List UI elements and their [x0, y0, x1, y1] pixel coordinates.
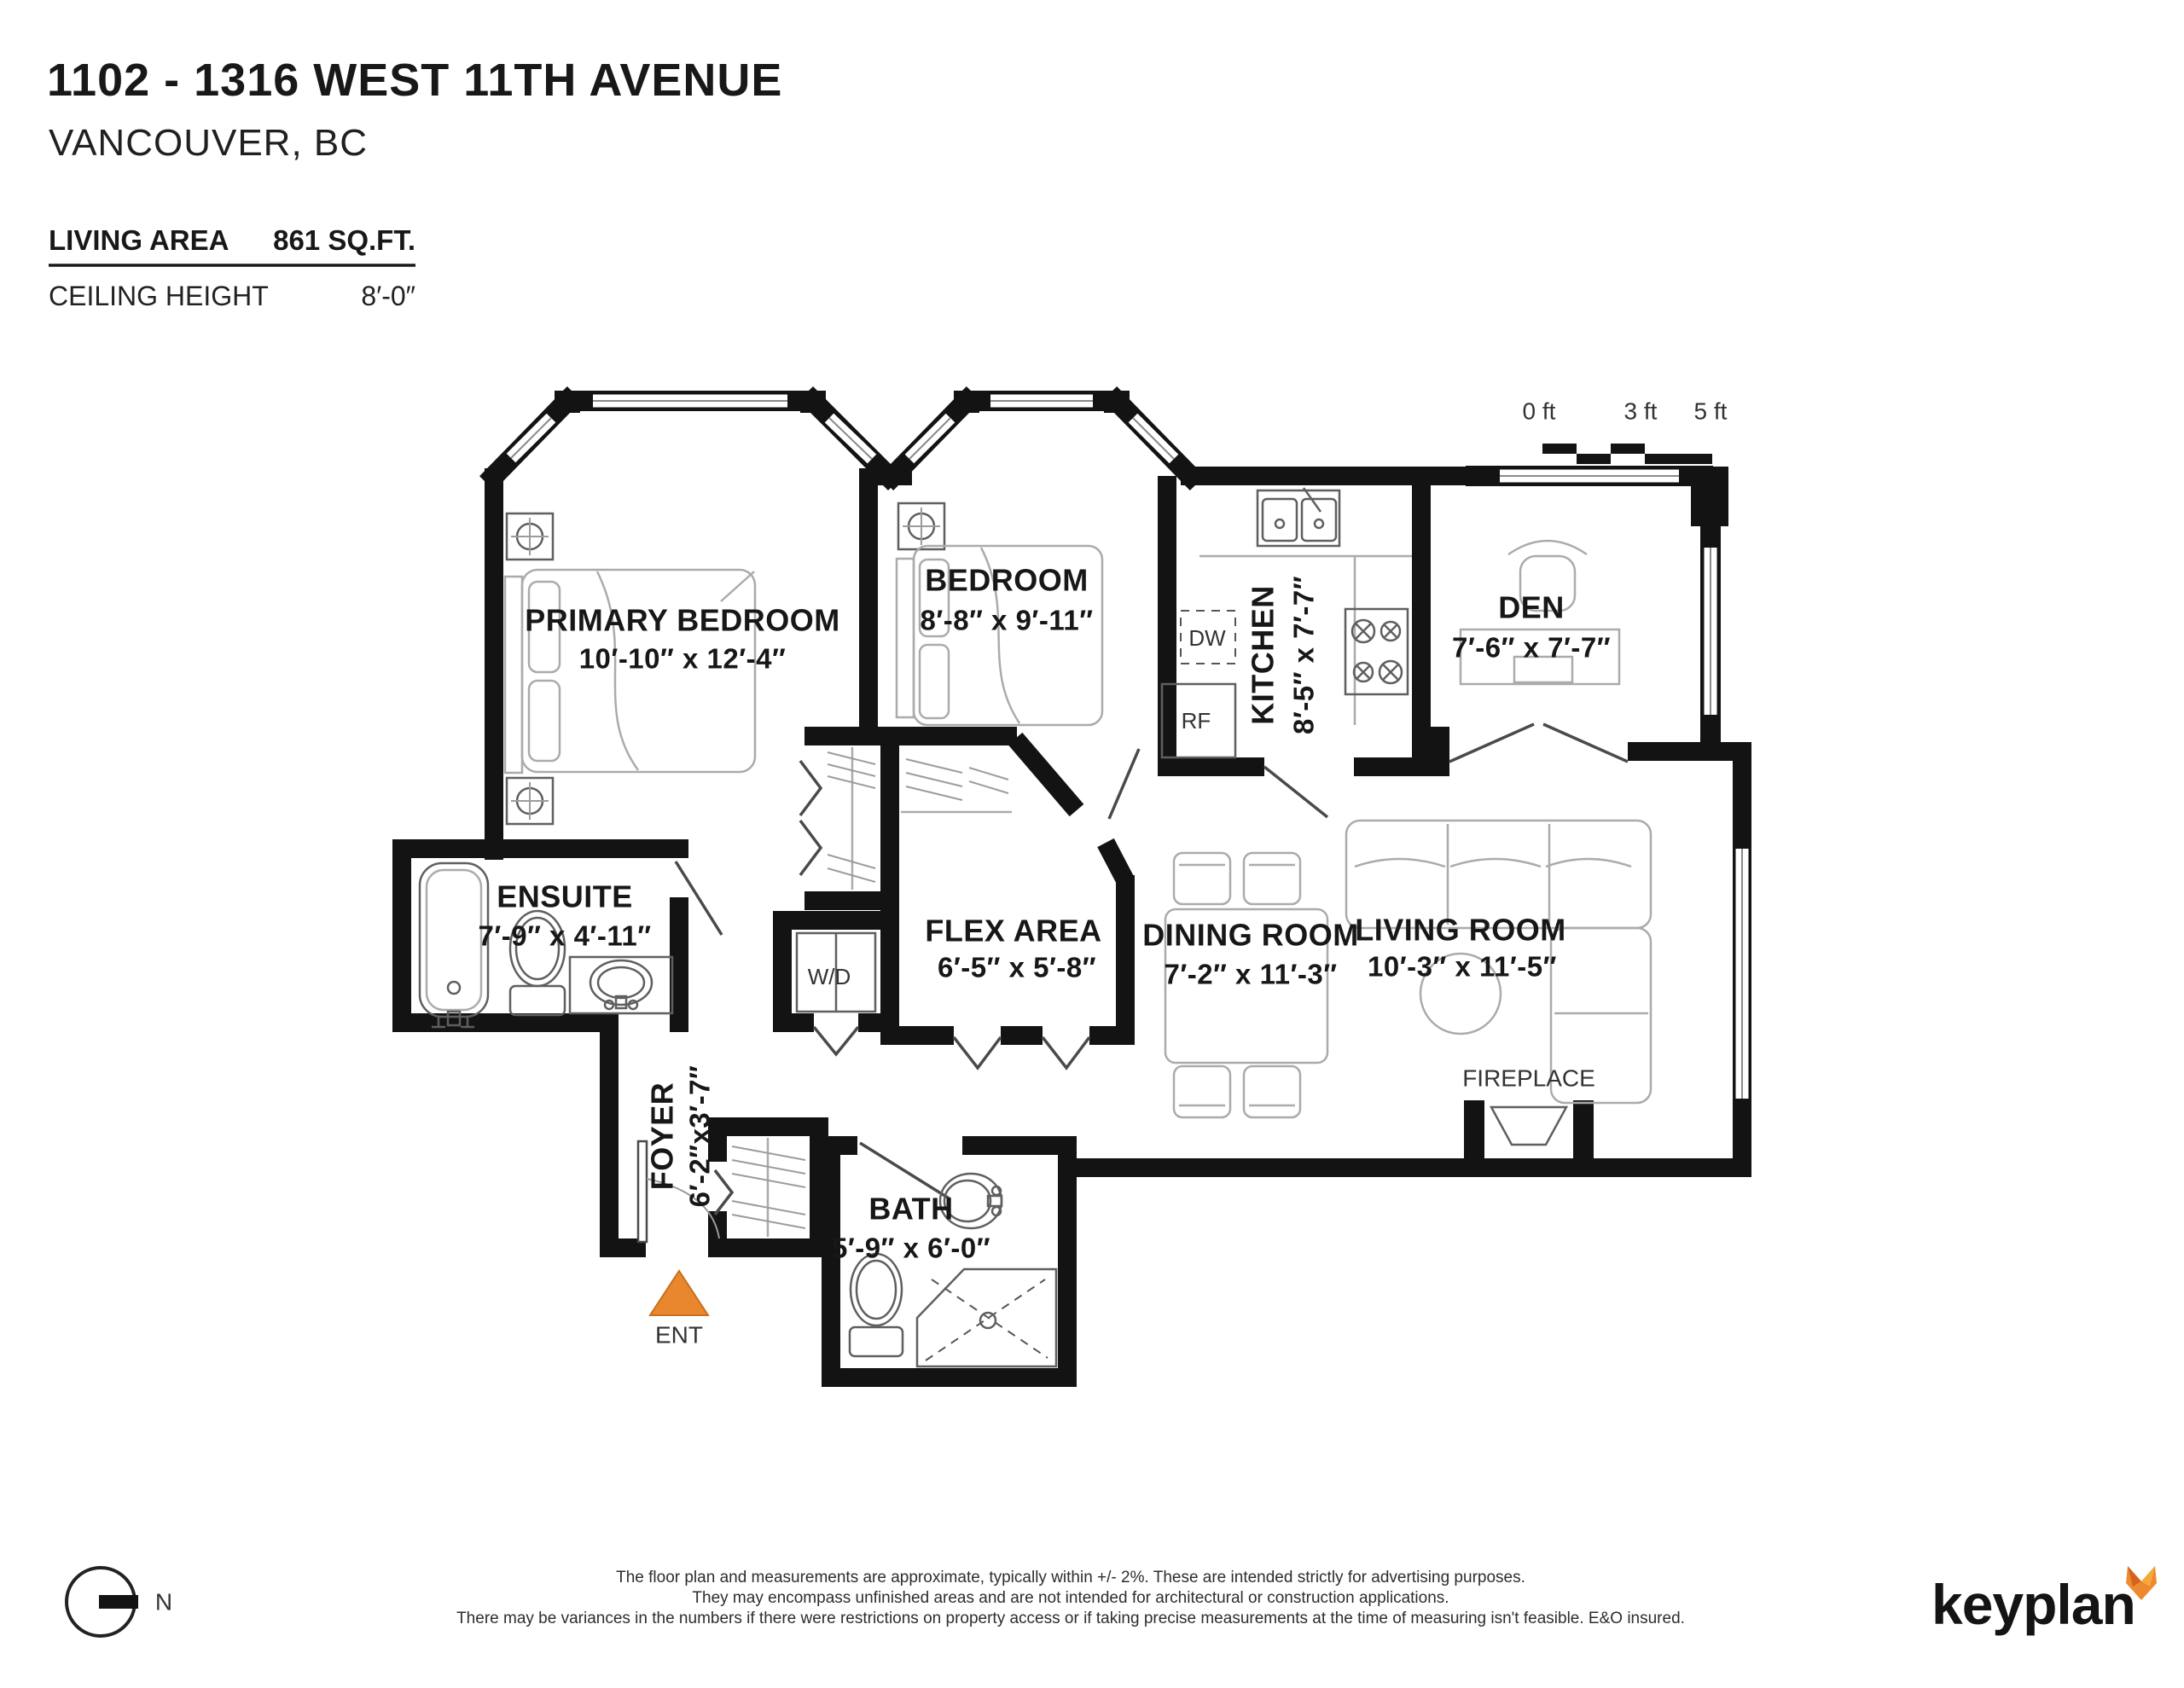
scale-bar-segment [1645, 454, 1712, 464]
room-label-flex-area: FLEX AREA [925, 914, 1101, 948]
entry-label: ENT [655, 1322, 703, 1349]
page-title: 1102 - 1316 WEST 11TH AVENUE [47, 55, 782, 106]
room-label-bedroom: BEDROOM [925, 563, 1089, 598]
room-label-ensuite: ENSUITE [497, 879, 633, 914]
ceiling-height-label: CEILING HEIGHT [49, 281, 269, 311]
closet-bifold [800, 821, 821, 875]
disclaimer-line-1: The floor plan and measurements are appr… [616, 1569, 1525, 1586]
flex-door-swing [1043, 1037, 1089, 1068]
scale-tick-5: 5 ft [1694, 398, 1728, 425]
closet-bifold [800, 761, 821, 815]
scale-tick-0: 0 ft [1523, 398, 1556, 425]
floor-plan-page: 1102 - 1316 WEST 11TH AVENUE VANCOUVER, … [0, 0, 2184, 1688]
north-arrow-icon: N [67, 1568, 172, 1636]
room-label-den: DEN [1498, 590, 1565, 625]
scale-bar: 0 ft 3 ft 5 ft [1523, 398, 1728, 465]
header: 1102 - 1316 WEST 11TH AVENUE VANCOUVER, … [47, 55, 782, 311]
room-label-primary-bedroom: PRIMARY BEDROOM [525, 603, 840, 638]
den-french-door-right [1543, 724, 1628, 762]
room-dims-foyer: 6′-2″x3′-7″ [684, 1065, 716, 1208]
room-label-dining-room: DINING ROOM [1142, 918, 1359, 953]
north-label: N [155, 1589, 172, 1615]
room-dims-den: 7′-6″ x 7′-7″ [1452, 632, 1611, 664]
foyer-closet-bifold [715, 1170, 732, 1215]
washer-dryer-label: W/D [808, 964, 851, 989]
disclaimer: The floor plan and measurements are appr… [456, 1569, 1685, 1627]
ceiling-height-value: 8′-0″ [361, 281, 415, 311]
entry-marker: ENT [650, 1271, 708, 1349]
room-dims-living-room: 10′-3″ x 11′-5″ [1368, 951, 1557, 983]
room-dims-kitchen: 8′-5″ x 7′-7″ [1288, 576, 1320, 734]
room-dims-bath: 5′-9″ x 6′-0″ [832, 1233, 990, 1264]
flex-door-leaf [1109, 749, 1139, 819]
fireplace-inner [1491, 1107, 1566, 1145]
page-subtitle: VANCOUVER, BC [49, 122, 368, 164]
scale-bar-segment [1577, 454, 1611, 464]
dishwasher-label: DW [1188, 625, 1226, 651]
ensuite-sink [570, 957, 672, 1013]
light-fixture-icon [507, 778, 553, 824]
room-dims-bedroom: 8′-8″ x 9′-11″ [920, 605, 1093, 636]
scale-bar-segment [1611, 444, 1645, 454]
room-label-kitchen: KITCHEN [1246, 585, 1281, 725]
floorplan-canvas: 1102 - 1316 WEST 11TH AVENUE VANCOUVER, … [0, 0, 2184, 1688]
room-label-bath: BATH [868, 1192, 953, 1227]
brand-logo: keyplan [1931, 1566, 2157, 1636]
living-area-label: LIVING AREA [49, 224, 229, 256]
room-dims-dining-room: 7′-2″ x 11′-3″ [1164, 959, 1337, 990]
room-label-living-room: LIVING ROOM [1355, 913, 1566, 948]
light-fixture-icon [507, 513, 553, 560]
scale-tick-3: 3 ft [1624, 398, 1658, 425]
room-dims-primary-bedroom: 10′-10″ x 12′-4″ [579, 643, 787, 675]
room-dims-flex-area: 6′-5″ x 5′-8″ [938, 952, 1096, 983]
light-fixture-icon [898, 503, 944, 549]
fireplace-label: FIREPLACE [1462, 1065, 1595, 1092]
den-french-door-left [1449, 724, 1534, 762]
wd-door-swing [814, 1027, 858, 1054]
brand-wordmark: keyplan [1931, 1573, 2135, 1636]
disclaimer-line-3: There may be variances in the numbers if… [456, 1610, 1685, 1627]
refrigerator-label: RF [1182, 708, 1211, 734]
living-area-value: 861 SQ.FT. [273, 224, 415, 256]
bath-shower [917, 1269, 1056, 1366]
room-label-foyer: FOYER [645, 1082, 680, 1191]
kitchen-door-leaf [1264, 767, 1327, 817]
scale-bar-segment [1542, 444, 1577, 454]
entry-triangle-icon [650, 1271, 708, 1315]
disclaimer-line-2: They may encompass unfinished areas and … [692, 1589, 1449, 1607]
bath-toilet [850, 1254, 903, 1356]
flex-door-swing [954, 1037, 1001, 1068]
room-dims-ensuite: 7′-9″ x 4′-11″ [478, 920, 651, 952]
kitchen-sink [1258, 488, 1339, 546]
